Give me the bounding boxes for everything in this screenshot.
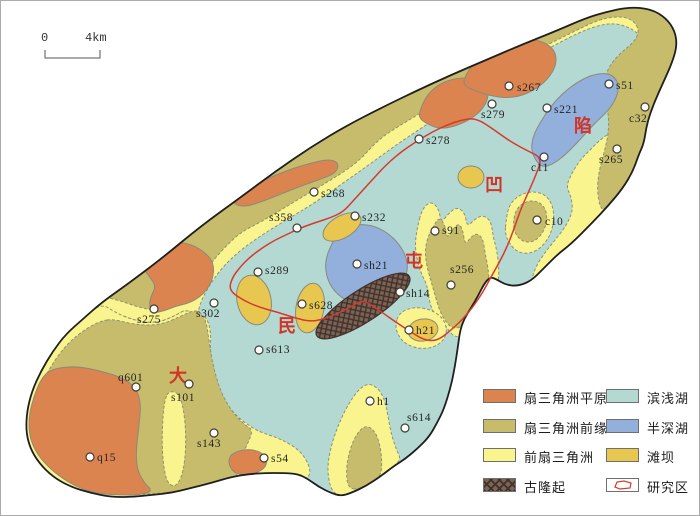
well-marker bbox=[254, 268, 262, 276]
well-marker bbox=[605, 80, 613, 88]
well-label: s302 bbox=[196, 308, 220, 320]
well-marker bbox=[431, 227, 439, 235]
scale-max-label: 4km bbox=[85, 31, 107, 45]
pre-fan-delta-channel bbox=[162, 392, 185, 486]
well-label: s91 bbox=[442, 225, 460, 237]
well-marker bbox=[353, 260, 361, 268]
legend-label: 研究区 bbox=[647, 477, 689, 496]
well-marker bbox=[641, 103, 649, 111]
well-label: s51 bbox=[616, 80, 634, 92]
well-marker bbox=[447, 281, 455, 289]
well-marker bbox=[150, 305, 158, 313]
fan-delta-plain-s54 bbox=[229, 450, 267, 475]
study-area-glyph bbox=[611, 479, 635, 491]
well-label: s279 bbox=[481, 109, 505, 121]
sag-name-char: 大 bbox=[169, 365, 187, 386]
well-label: s289 bbox=[265, 265, 289, 277]
well-marker bbox=[293, 224, 301, 232]
well-marker bbox=[505, 82, 513, 90]
legend-swatch-olive bbox=[483, 419, 516, 433]
sag-name-char: 民 bbox=[278, 316, 296, 336]
well-marker bbox=[401, 424, 409, 432]
well-marker bbox=[396, 288, 404, 296]
well-label: h21 bbox=[416, 325, 435, 337]
well-marker bbox=[540, 153, 548, 161]
legend-label: 前扇三角洲 bbox=[524, 447, 594, 466]
well-marker bbox=[543, 104, 551, 112]
well-marker bbox=[310, 188, 318, 196]
well-label: c10 bbox=[545, 216, 563, 228]
legend-label: 扇三角洲平原 bbox=[524, 388, 608, 407]
well-label: s278 bbox=[426, 135, 450, 147]
legend-label: 扇三角洲前缘 bbox=[524, 418, 608, 437]
legend-label: 滨浅湖 bbox=[647, 388, 689, 407]
well-marker bbox=[210, 299, 218, 307]
legend-swatch-hatch bbox=[483, 478, 516, 492]
legend-swatch-gold bbox=[606, 448, 639, 462]
legend-swatch-blue bbox=[606, 419, 639, 433]
legend: 扇三角洲平原扇三角洲前缘前扇三角洲古隆起滨浅湖半深湖滩坝研究区 bbox=[483, 389, 695, 509]
well-label: c11 bbox=[531, 162, 549, 174]
sag-name-char: 凹 bbox=[485, 175, 503, 195]
well-marker bbox=[351, 212, 359, 220]
legend-swatch-paleyellow bbox=[483, 448, 516, 462]
sag-name-char: 陷 bbox=[574, 115, 592, 136]
well-marker bbox=[533, 216, 541, 224]
well-label: h1 bbox=[377, 396, 390, 408]
scale-zero-label: 0 bbox=[41, 31, 48, 45]
well-marker bbox=[132, 383, 140, 391]
scale-bar: 0 4km bbox=[31, 31, 121, 63]
well-label: s232 bbox=[362, 212, 386, 224]
well-label: sh21 bbox=[364, 260, 388, 272]
well-label: s101 bbox=[171, 392, 195, 404]
well-label: q601 bbox=[118, 372, 143, 384]
beach-bar-ao bbox=[458, 166, 484, 188]
well-s91: s91 bbox=[431, 225, 460, 237]
legend-label: 半深湖 bbox=[647, 418, 689, 437]
well-label: s221 bbox=[554, 104, 578, 116]
legend-swatch-orange bbox=[483, 389, 516, 403]
sag-name-char: 屯 bbox=[405, 250, 423, 271]
well-marker bbox=[613, 145, 621, 153]
well-label: s614 bbox=[407, 412, 431, 424]
well-label: s265 bbox=[599, 154, 623, 166]
well-label: c32 bbox=[629, 113, 647, 125]
well-label: s275 bbox=[137, 314, 161, 326]
scale-bar-line bbox=[31, 45, 121, 63]
well-label: s267 bbox=[517, 82, 541, 94]
well-marker bbox=[405, 326, 413, 334]
well-marker bbox=[298, 300, 306, 308]
well-s613: s613 bbox=[255, 344, 290, 356]
well-marker bbox=[260, 454, 268, 462]
well-label: s628 bbox=[309, 300, 333, 312]
legend-swatch-teal bbox=[606, 389, 639, 403]
well-label: s613 bbox=[266, 344, 290, 356]
well-label: sh14 bbox=[406, 288, 430, 300]
well-marker bbox=[210, 429, 218, 437]
legend-swatch-outline bbox=[606, 478, 639, 492]
well-marker bbox=[255, 346, 263, 354]
legend-label: 古隆起 bbox=[524, 477, 566, 496]
well-marker bbox=[366, 397, 374, 405]
well-label: s256 bbox=[450, 264, 474, 276]
legend-label: 滩坝 bbox=[647, 447, 675, 466]
well-marker bbox=[415, 135, 423, 143]
well-marker bbox=[488, 100, 496, 108]
well-label: q15 bbox=[97, 452, 116, 464]
well-label: s143 bbox=[197, 438, 221, 450]
well-label: s54 bbox=[271, 453, 289, 465]
well-label: s268 bbox=[321, 188, 345, 200]
well-label: s358 bbox=[269, 212, 293, 224]
well-marker bbox=[86, 453, 94, 461]
figure-frame: 大民屯凹陷s267s279s221s51c32s265c11c10s278s26… bbox=[0, 0, 700, 516]
well-marker bbox=[185, 380, 193, 388]
